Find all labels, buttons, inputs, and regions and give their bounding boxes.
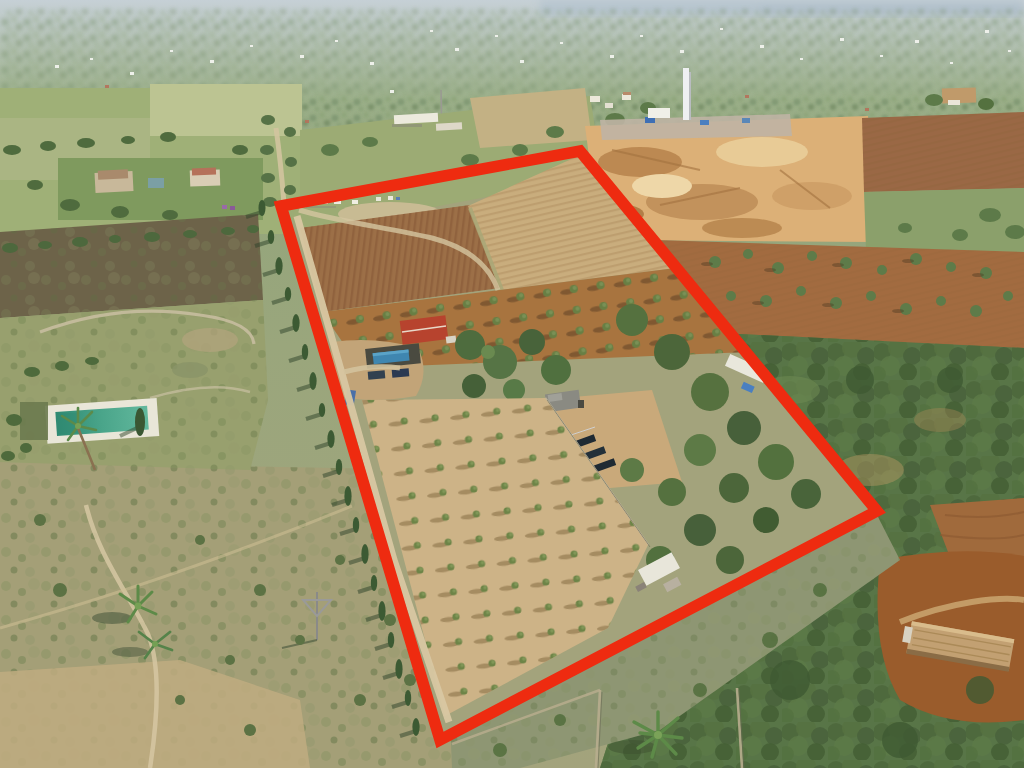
- white-tower: [683, 68, 691, 120]
- aerial-photo-canvas: [0, 0, 1024, 768]
- left-pastures: [0, 84, 302, 318]
- aerial-photo: [0, 0, 1024, 768]
- neighbour-pool-garden: [0, 300, 268, 470]
